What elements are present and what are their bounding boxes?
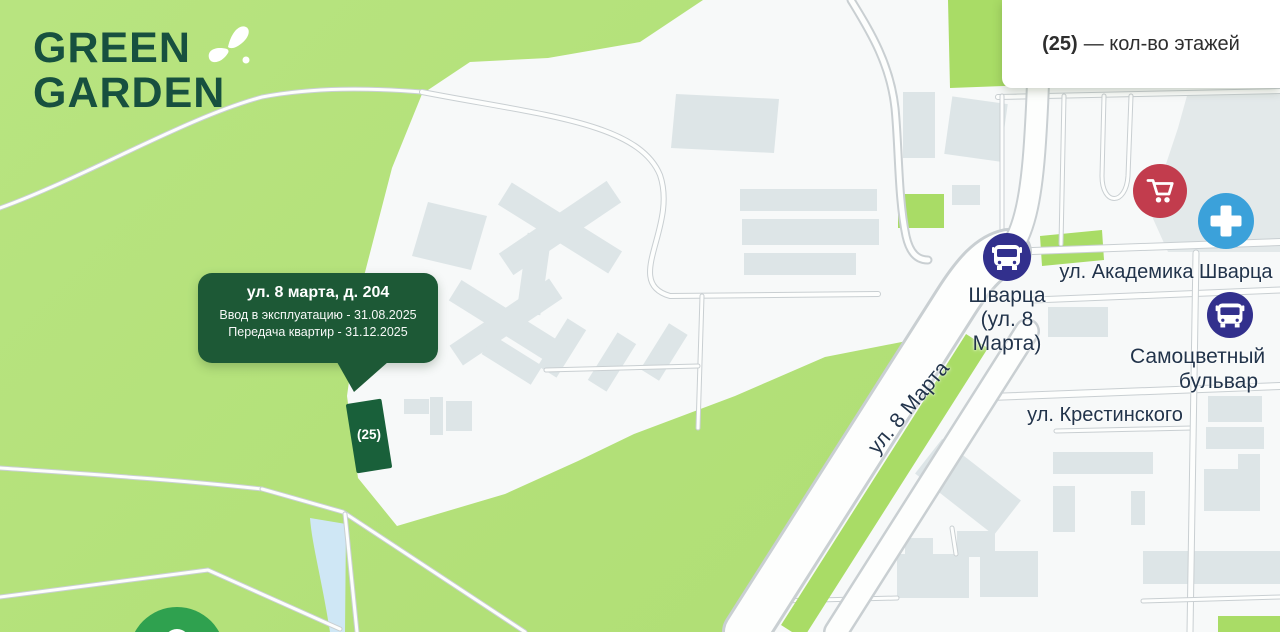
brand-logo: GREEN GARDEN	[33, 26, 225, 116]
brand-line-1: GREEN	[33, 26, 225, 71]
park-tree-icon	[128, 606, 226, 632]
street-label-krestinskogo: ул. Крестинского	[1020, 404, 1190, 427]
callout-address: ул. 8 марта, д. 204	[198, 284, 438, 302]
legend-floors-value: (25)	[1042, 33, 1078, 56]
floors-legend: (25) — кол-во этажей	[1002, 0, 1280, 88]
callout-tail	[337, 362, 388, 392]
bus-stop-icon	[1207, 292, 1253, 338]
callout-commissioning: Ввод в эксплуатацию - 31.08.2025	[198, 307, 438, 324]
map-page: GREEN GARDEN (25) — кол-во этажей ул. 8 …	[0, 0, 1280, 632]
shopping-cart-icon	[1132, 163, 1188, 219]
highlighted-building-floors: (25)	[347, 427, 391, 442]
bus-stop-shvartsa-label: Шварца (ул. 8 Марта)	[945, 284, 1069, 356]
legend-floors-text: — кол-во этажей	[1084, 33, 1240, 56]
bus-stop-samotsvetny-label: Самоцветный бульвар	[1130, 344, 1258, 394]
medical-cross-icon	[1198, 193, 1254, 249]
bus-stop-samotsvetny-line1: Самоцветный	[1130, 344, 1258, 369]
callout-handover: Передача квартир - 31.12.2025	[198, 324, 438, 341]
butterfly-icon	[202, 20, 254, 72]
bus-stop-icon	[983, 233, 1031, 281]
bus-stop-shvartsa-line1: Шварца	[945, 284, 1069, 308]
brand-line-2: GARDEN	[33, 71, 225, 116]
bus-stop-samotsvetny-line2: бульвар	[1130, 369, 1258, 394]
bus-stop-shvartsa-line2: (ул. 8 Марта)	[945, 308, 1069, 356]
building-callout: ул. 8 марта, д. 204 Ввод в эксплуатацию …	[198, 273, 438, 363]
pond	[310, 518, 346, 632]
street-label-akademika-shvartsa: ул. Академика Шварца	[1052, 261, 1280, 284]
